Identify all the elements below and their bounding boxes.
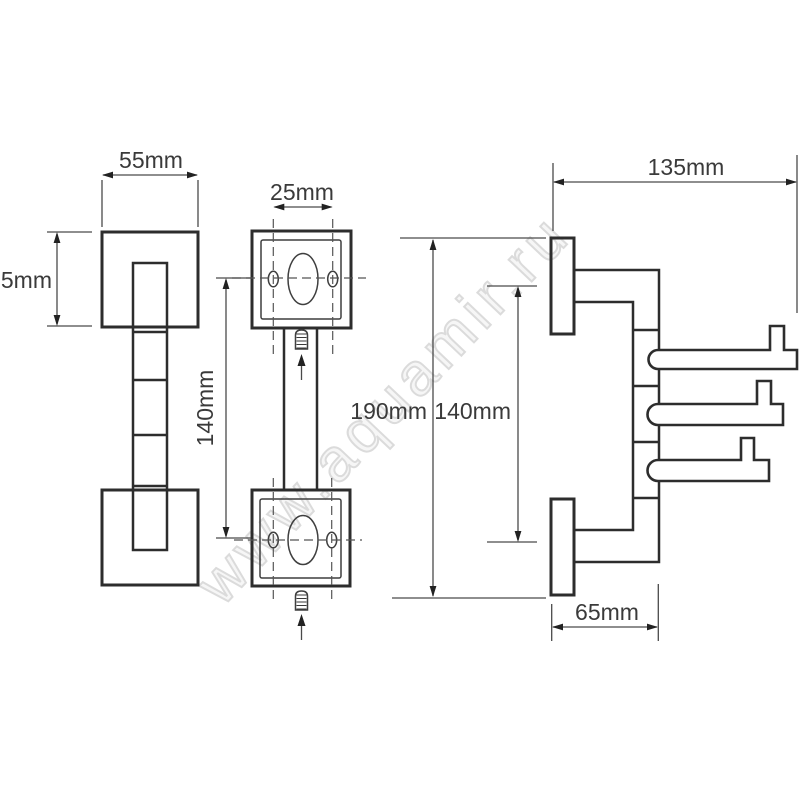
technical-drawing-canvas: www.aquamir.ru 55mm 55mm xyxy=(0,0,800,800)
stud-outline xyxy=(296,591,308,610)
dimension-front-width: 55mm xyxy=(102,147,198,227)
top-insert-arrow xyxy=(298,354,306,380)
plate-outline xyxy=(252,231,351,328)
bottom-insert-arrow xyxy=(298,614,306,640)
side-view-right: 135mm 190mm 140mm 65mm xyxy=(350,154,797,641)
dim-label-overall-height: 190mm xyxy=(350,398,427,424)
arrowhead-down-icon xyxy=(54,315,61,326)
center-opening xyxy=(288,254,318,305)
arrowhead-left-icon xyxy=(102,172,113,179)
arrowhead-left-icon xyxy=(553,179,564,186)
dim-lines xyxy=(216,278,251,538)
stud-outline xyxy=(296,330,308,349)
arm-post-outer-outline xyxy=(574,270,659,562)
arrowhead-right-icon xyxy=(187,172,198,179)
swivel-hook-bottom xyxy=(648,438,770,481)
thread-lines xyxy=(297,595,307,609)
arrowhead-up-icon xyxy=(298,614,306,626)
arm-post-inner-outline xyxy=(574,302,633,530)
arrowhead-down-icon xyxy=(430,586,437,597)
arrowhead-up-icon xyxy=(54,232,61,243)
dim-label-plate-spacing: 140mm xyxy=(192,370,218,447)
dimension-plate-spacing: 140mm xyxy=(192,278,251,538)
arrowhead-right-icon xyxy=(647,624,658,631)
top-mounting-plate xyxy=(232,219,366,357)
dimension-front-height: 55mm xyxy=(0,232,92,326)
front-top-square xyxy=(102,232,198,327)
front-center-bar xyxy=(133,263,167,550)
dimension-reach: 135mm xyxy=(553,154,797,313)
technical-drawing-page: www.aquamir.ru 55mm 55mm xyxy=(0,0,800,800)
top-screw-stud-icon xyxy=(296,330,308,349)
dim-label-front-height: 55mm xyxy=(0,267,52,293)
swivel-hook-top xyxy=(649,326,798,369)
thread-lines xyxy=(297,334,307,348)
front-view-left: 55mm 55mm xyxy=(0,147,198,585)
arrowhead-up-icon xyxy=(430,239,437,250)
dim-label-depth: 65mm xyxy=(575,599,639,625)
arrowhead-up-icon xyxy=(223,278,230,289)
bottom-screw-stud-icon xyxy=(296,591,308,610)
arrowhead-right-icon xyxy=(786,179,797,186)
dim-label-hook-span: 140mm xyxy=(434,398,511,424)
dim-label-reach: 135mm xyxy=(648,154,725,180)
dim-label-hole-spacing: 25mm xyxy=(270,179,334,205)
front-bar-collar-lines xyxy=(133,332,167,486)
arrowhead-up-icon xyxy=(298,354,306,366)
arrowhead-down-icon xyxy=(515,531,522,542)
dimension-hole-spacing: 25mm xyxy=(270,179,334,210)
side-bottom-wall-plate xyxy=(551,499,574,595)
swivel-hook-middle xyxy=(648,381,784,425)
dim-lines xyxy=(102,175,198,227)
dim-label-front-width: 55mm xyxy=(119,147,183,173)
arrowhead-left-icon xyxy=(552,624,563,631)
dim-lines xyxy=(47,232,92,326)
dimension-depth: 65mm xyxy=(552,584,659,641)
